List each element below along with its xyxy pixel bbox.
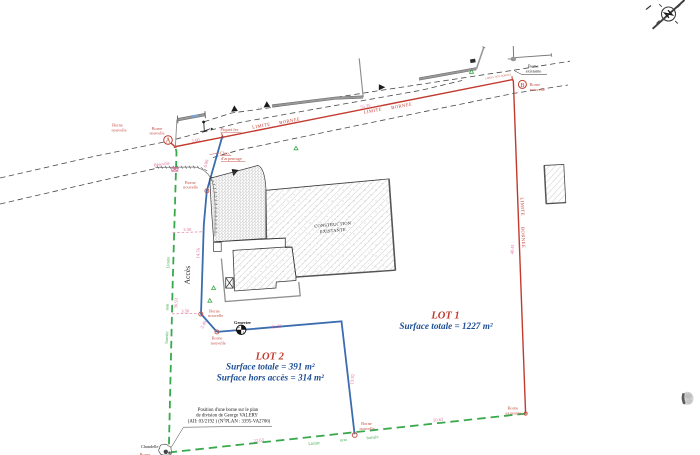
svg-text:nouvelle: nouvelle [111,127,126,132]
svg-text:nouvelle: nouvelle [211,340,226,345]
svg-text:d'arpentage: d'arpentage [221,156,242,161]
svg-text:LIMITE: LIMITE [520,197,526,216]
svg-text:Accès: Accès [183,266,193,285]
svg-text:Position d'une borne sur le pl: Position d'une borne sur le plan [198,408,259,413]
svg-text:15.23: 15.23 [271,323,282,329]
svg-text:nouvelle: nouvelle [208,313,223,318]
svg-text:de division de George VALERY: de division de George VALERY [196,413,258,418]
svg-text:(AII: 03/2192 ) (N°PLAN : 3395: (AII: 03/2192 ) (N°PLAN : 3395-VA2706) [188,419,271,424]
svg-text:non: non [164,303,169,311]
svg-text:36.93: 36.93 [173,297,178,308]
svg-text:nouvelle: nouvelle [183,184,198,189]
svg-text:A: A [165,137,170,145]
svg-text:3.50: 3.50 [183,227,192,232]
svg-text:14.76: 14.76 [195,247,201,258]
svg-text:3.50: 3.50 [181,309,190,314]
svg-text:existante: existante [526,69,542,74]
svg-text:40.41: 40.41 [510,243,515,254]
svg-text:Surface totale = 1227 m²: Surface totale = 1227 m² [399,321,492,331]
svg-text:B: B [520,82,525,89]
svg-text:Piquet fer: Piquet fer [220,127,238,132]
svg-text:bornée: bornée [164,331,169,343]
svg-text:Chandelle: Chandelle [141,444,159,449]
svg-text:nouvelle: nouvelle [359,426,374,431]
svg-text:Surface hors accès = 314 m²: Surface hors accès = 314 m² [217,372,325,382]
svg-text:Limite: Limite [165,257,170,269]
svg-text:nouvelle: nouvelle [149,131,164,136]
svg-text:Surface totale = 391 m²: Surface totale = 391 m² [226,362,315,372]
svg-text:existante: existante [505,410,521,415]
svg-text:Genevier: Genevier [234,320,251,325]
svg-text:nouvelle: nouvelle [530,87,545,92]
